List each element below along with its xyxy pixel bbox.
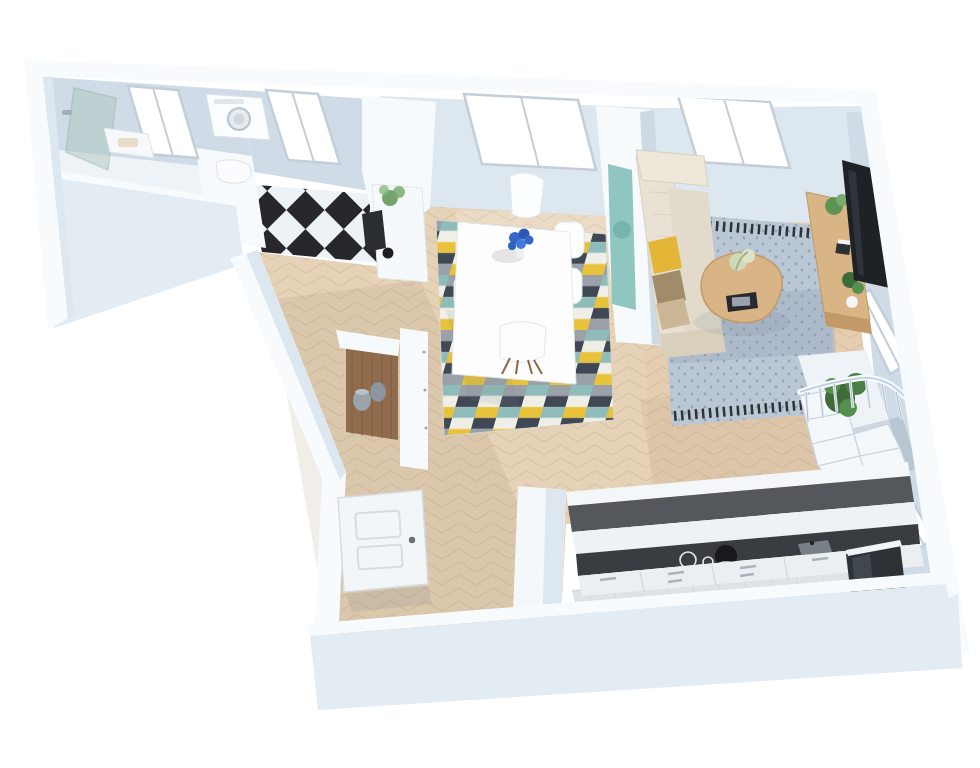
dining-chair-top (510, 173, 544, 218)
front-door (338, 490, 428, 592)
toilet (216, 160, 251, 184)
door-handle (409, 537, 415, 543)
entry (338, 490, 432, 612)
closet-door-panel (400, 328, 428, 470)
washer-panel (214, 99, 244, 104)
sideboard-screen (362, 210, 386, 252)
vanity-towel (118, 138, 138, 147)
basket-2 (370, 382, 386, 402)
console-books (835, 243, 850, 255)
black-pot (383, 248, 394, 259)
shower-head (62, 110, 72, 115)
floorplan-stage (0, 0, 980, 768)
dining-window (464, 94, 596, 170)
console-vase (846, 296, 858, 308)
sofa-arm (636, 150, 708, 186)
floorplan-svg (0, 0, 980, 768)
pillow-yellow (648, 236, 682, 274)
